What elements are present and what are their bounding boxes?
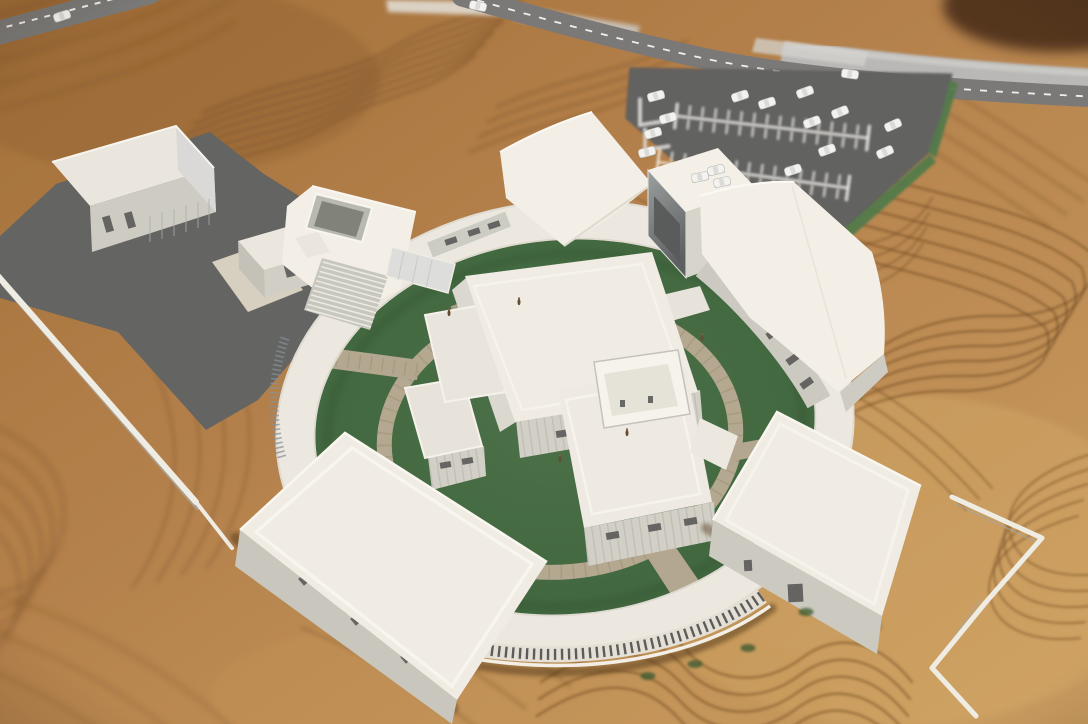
vignette [0, 0, 1088, 724]
architectural-model-photo: Aerial view of an architectural scale mo… [0, 0, 1088, 724]
